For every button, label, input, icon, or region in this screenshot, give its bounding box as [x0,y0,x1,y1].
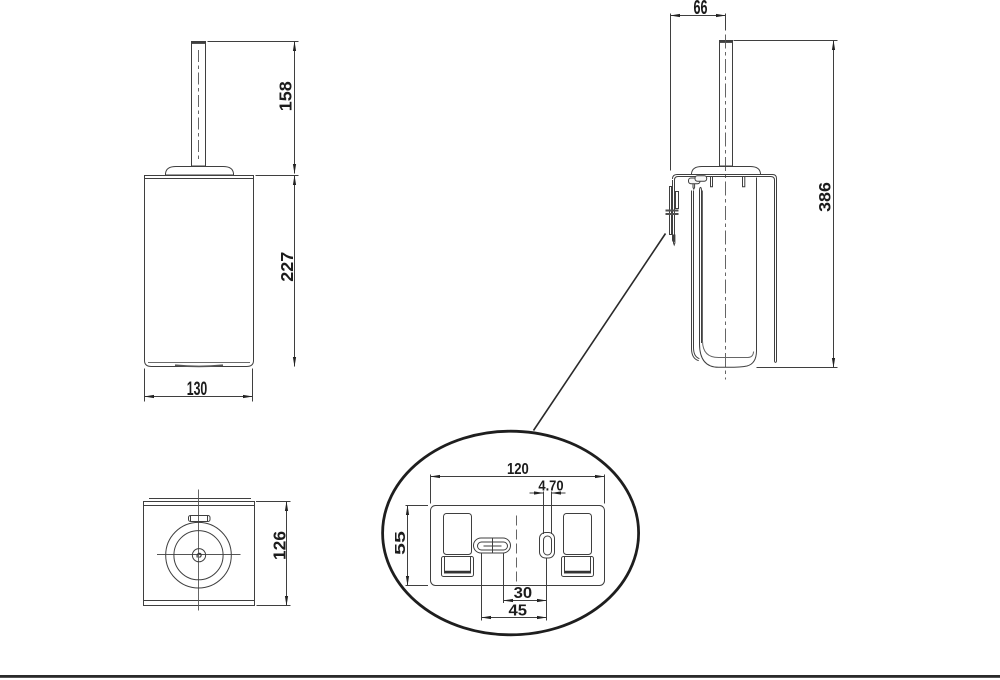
svg-text:55: 55 [392,531,409,555]
svg-text:158: 158 [276,81,296,111]
svg-text:4.70: 4.70 [538,477,563,494]
svg-text:126: 126 [270,531,290,560]
svg-text:386: 386 [816,182,835,212]
svg-text:130: 130 [187,379,208,400]
svg-text:227: 227 [277,252,297,282]
svg-text:120: 120 [507,461,529,478]
svg-text:66: 66 [694,0,708,19]
svg-text:30: 30 [514,585,533,602]
svg-text:45: 45 [509,603,528,620]
